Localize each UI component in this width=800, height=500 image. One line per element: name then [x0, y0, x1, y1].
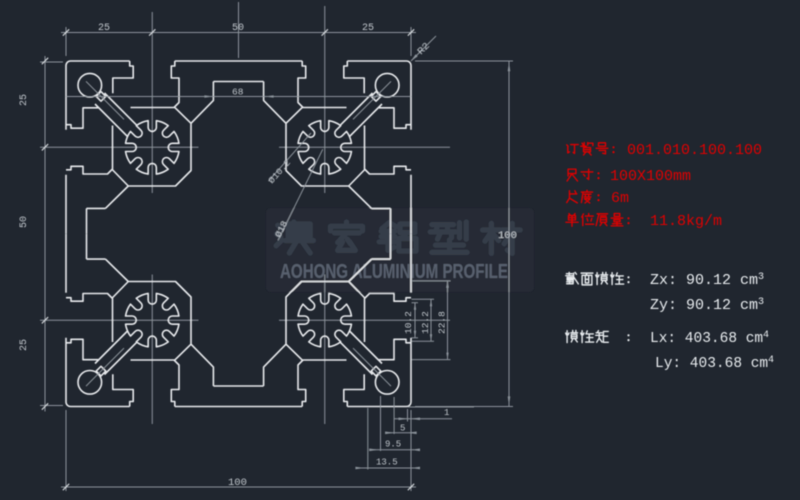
svg-text:3: 3 [758, 272, 764, 283]
svg-text:12.2: 12.2 [420, 311, 431, 334]
svg-text:50: 50 [232, 23, 244, 34]
svg-text:100X100mm: 100X100mm [610, 168, 691, 185]
svg-text:11.8kg/m: 11.8kg/m [650, 213, 722, 230]
svg-text:25: 25 [19, 94, 30, 106]
svg-text:4: 4 [763, 330, 769, 341]
svg-text:25: 25 [362, 23, 374, 34]
svg-text:25: 25 [19, 339, 30, 351]
svg-text:1: 1 [444, 408, 449, 418]
svg-text:001.010.100.100: 001.010.100.100 [627, 142, 762, 159]
svg-text:68: 68 [232, 87, 244, 98]
svg-text:50: 50 [19, 216, 30, 228]
svg-text:100: 100 [228, 477, 247, 489]
svg-text:Lx: 403.68 cm: Lx: 403.68 cm [650, 331, 763, 347]
svg-text:13.5: 13.5 [376, 458, 398, 468]
svg-text:AOHONG ALUMINIUM PROFILE: AOHONG ALUMINIUM PROFILE [280, 260, 508, 283]
svg-text:5: 5 [400, 424, 405, 434]
svg-text:6m: 6m [611, 190, 629, 207]
svg-text:4: 4 [768, 355, 774, 366]
svg-text:9.5: 9.5 [385, 440, 401, 450]
svg-text:25: 25 [98, 23, 110, 34]
svg-text:Zx: 90.12 cm: Zx: 90.12 cm [650, 272, 758, 289]
svg-text:100: 100 [498, 230, 517, 242]
svg-text:Ly: 403.68 cm: Ly: 403.68 cm [655, 356, 768, 372]
svg-text:Zy: 90.12 cm: Zy: 90.12 cm [650, 297, 758, 314]
svg-text:22.8: 22.8 [437, 311, 448, 334]
svg-text:10.2: 10.2 [403, 311, 414, 334]
svg-text:3: 3 [758, 297, 764, 308]
